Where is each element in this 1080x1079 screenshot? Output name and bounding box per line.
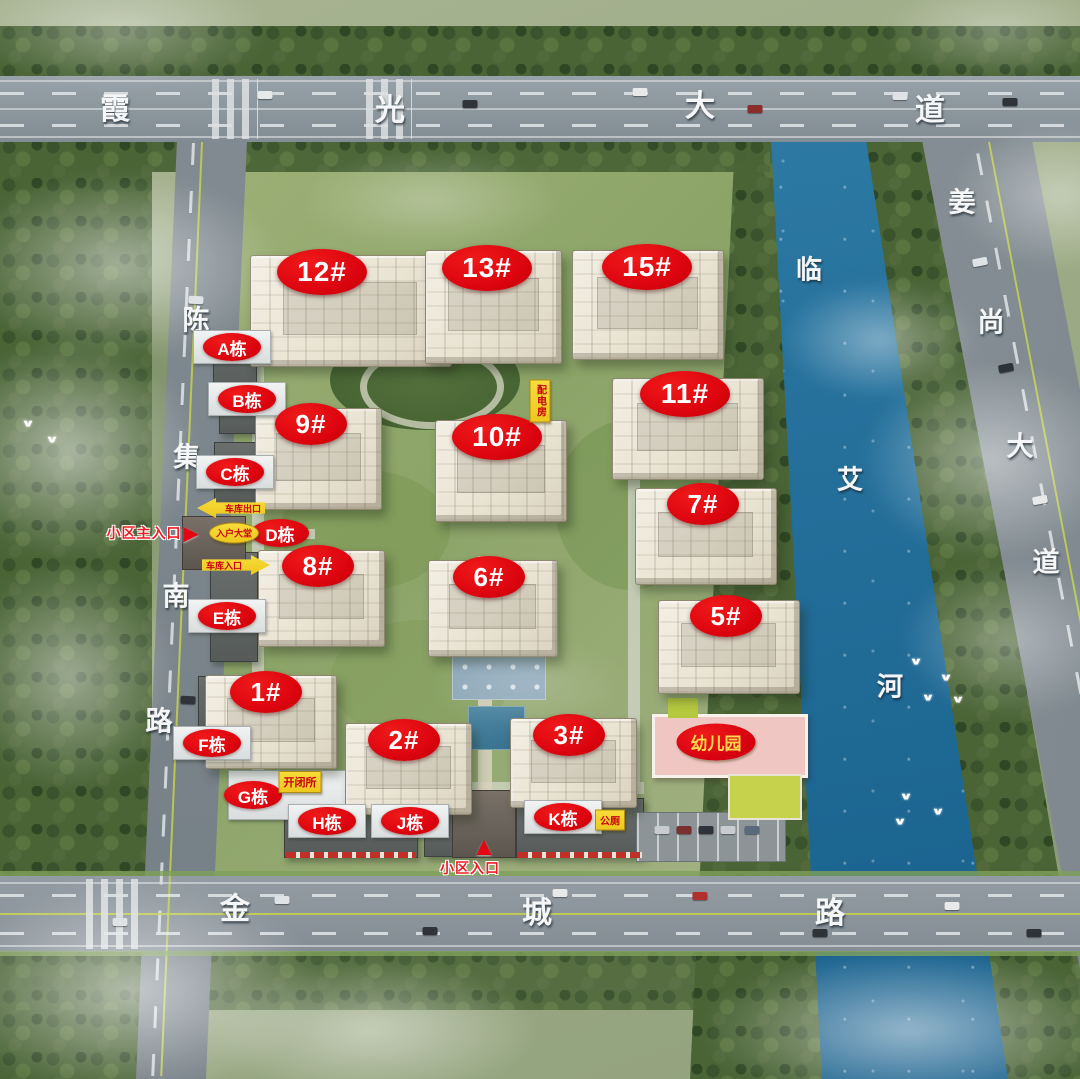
road-river-name-char-0: 临 bbox=[796, 250, 822, 287]
road-right-name-char-1: 尚 bbox=[978, 301, 1005, 340]
labels-layer: 霞光大道陈集南路姜尚大道金城路临艾河12#13#15#11#9#10#7#8#6… bbox=[0, 0, 1080, 1079]
entrance-label-main: 小区主入口 bbox=[107, 523, 182, 543]
building-label-1: 1# bbox=[230, 671, 302, 713]
building-label-7: 7# bbox=[667, 483, 739, 525]
building-label-9: 9# bbox=[275, 403, 347, 445]
block-label-g: G栋 bbox=[224, 781, 282, 809]
road-top-name-char-0: 霞 bbox=[100, 84, 130, 128]
road-bottom-name-char-1: 城 bbox=[522, 888, 552, 932]
building-label-13: 13# bbox=[442, 245, 532, 291]
entrance-arrow-main-icon: ► bbox=[178, 520, 204, 546]
building-label-6: 6# bbox=[453, 556, 525, 598]
block-label-c: C栋 bbox=[206, 458, 264, 486]
block-label-h: H栋 bbox=[298, 807, 356, 835]
facility-label-cheku-chukou: 车库出口 bbox=[197, 498, 265, 518]
road-right-name-char-2: 大 bbox=[1007, 425, 1034, 464]
road-top-name-char-1: 光 bbox=[375, 85, 405, 129]
facility-label-peidianfang: 配电房 bbox=[530, 380, 551, 423]
facility-label-kaibisuo: 开闭所 bbox=[279, 771, 322, 793]
facility-label-ruhu-dating: 入户大堂 bbox=[209, 523, 259, 544]
block-label-e: E栋 bbox=[198, 602, 256, 630]
block-label-f: F栋 bbox=[183, 729, 241, 757]
road-right-name-char-0: 姜 bbox=[949, 181, 976, 220]
road-river-name-char-1: 艾 bbox=[837, 460, 863, 497]
facility-label-gongce: 公厕 bbox=[595, 810, 625, 831]
block-label-b: B栋 bbox=[218, 385, 276, 413]
road-bottom-name-char-0: 金 bbox=[220, 884, 250, 928]
road-left-name-char-2: 南 bbox=[163, 575, 190, 614]
building-label-3: 3# bbox=[533, 714, 605, 756]
road-left-name-char-3: 路 bbox=[146, 700, 173, 739]
road-top-name-char-2: 大 bbox=[685, 81, 715, 125]
building-label-12: 12# bbox=[277, 249, 367, 295]
building-label-15: 15# bbox=[602, 244, 692, 290]
road-bottom-name-char-2: 路 bbox=[815, 888, 845, 932]
block-label-j: J栋 bbox=[381, 807, 439, 835]
road-right-name-char-3: 道 bbox=[1033, 541, 1060, 580]
building-label-8: 8# bbox=[282, 545, 354, 587]
building-label-5: 5# bbox=[690, 595, 762, 637]
residential-site-plan: ∨∨∨∨∨∨∨∨∨ 霞光大道陈集南路姜尚大道金城路临艾河12#13#15#11#… bbox=[0, 0, 1080, 1079]
building-label-11: 11# bbox=[640, 371, 730, 417]
entrance-arrow-south-icon: ▲ bbox=[471, 833, 497, 859]
building-label-2: 2# bbox=[368, 719, 440, 761]
facility-label-cheku-rukou: 车库入口 bbox=[202, 555, 270, 575]
block-label-a: A栋 bbox=[203, 333, 261, 361]
road-top-name-char-3: 道 bbox=[915, 85, 945, 129]
facility-label-youeryuan: 幼儿园 bbox=[677, 724, 756, 761]
building-label-10: 10# bbox=[452, 414, 542, 460]
block-label-k: K栋 bbox=[534, 803, 592, 831]
road-river-name-char-2: 河 bbox=[877, 667, 903, 704]
block-label-d: D栋 bbox=[251, 519, 309, 547]
entrance-label-south: 小区入口 bbox=[440, 858, 500, 878]
